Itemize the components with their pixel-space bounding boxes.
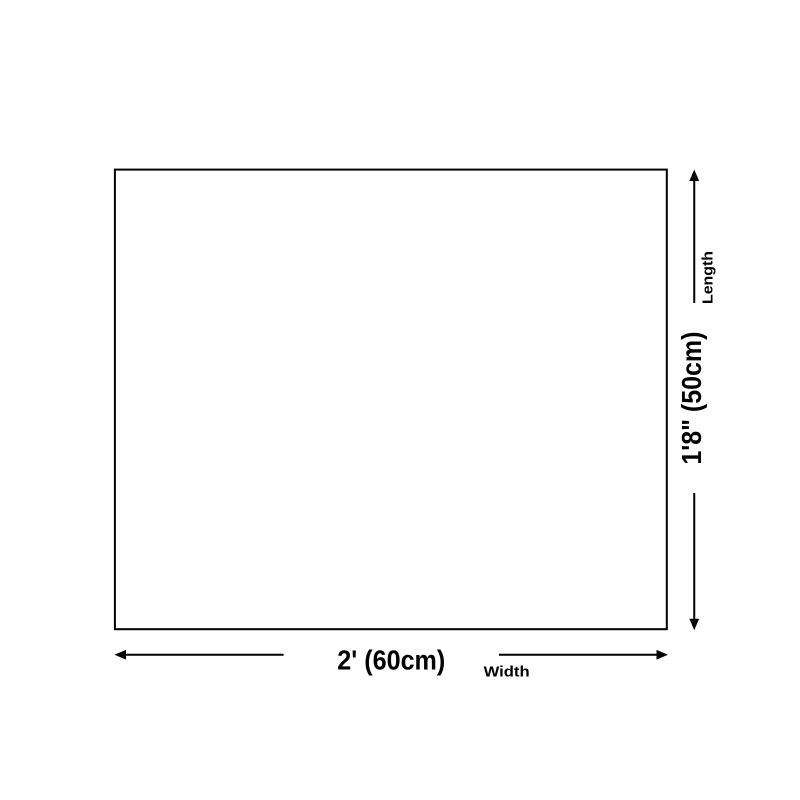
svg-text:Width: Width [484, 664, 530, 681]
svg-text:2' (60cm): 2' (60cm) [337, 645, 445, 676]
svg-text:1'8" (50cm): 1'8" (50cm) [676, 332, 707, 465]
svg-text:Length: Length [700, 251, 717, 304]
